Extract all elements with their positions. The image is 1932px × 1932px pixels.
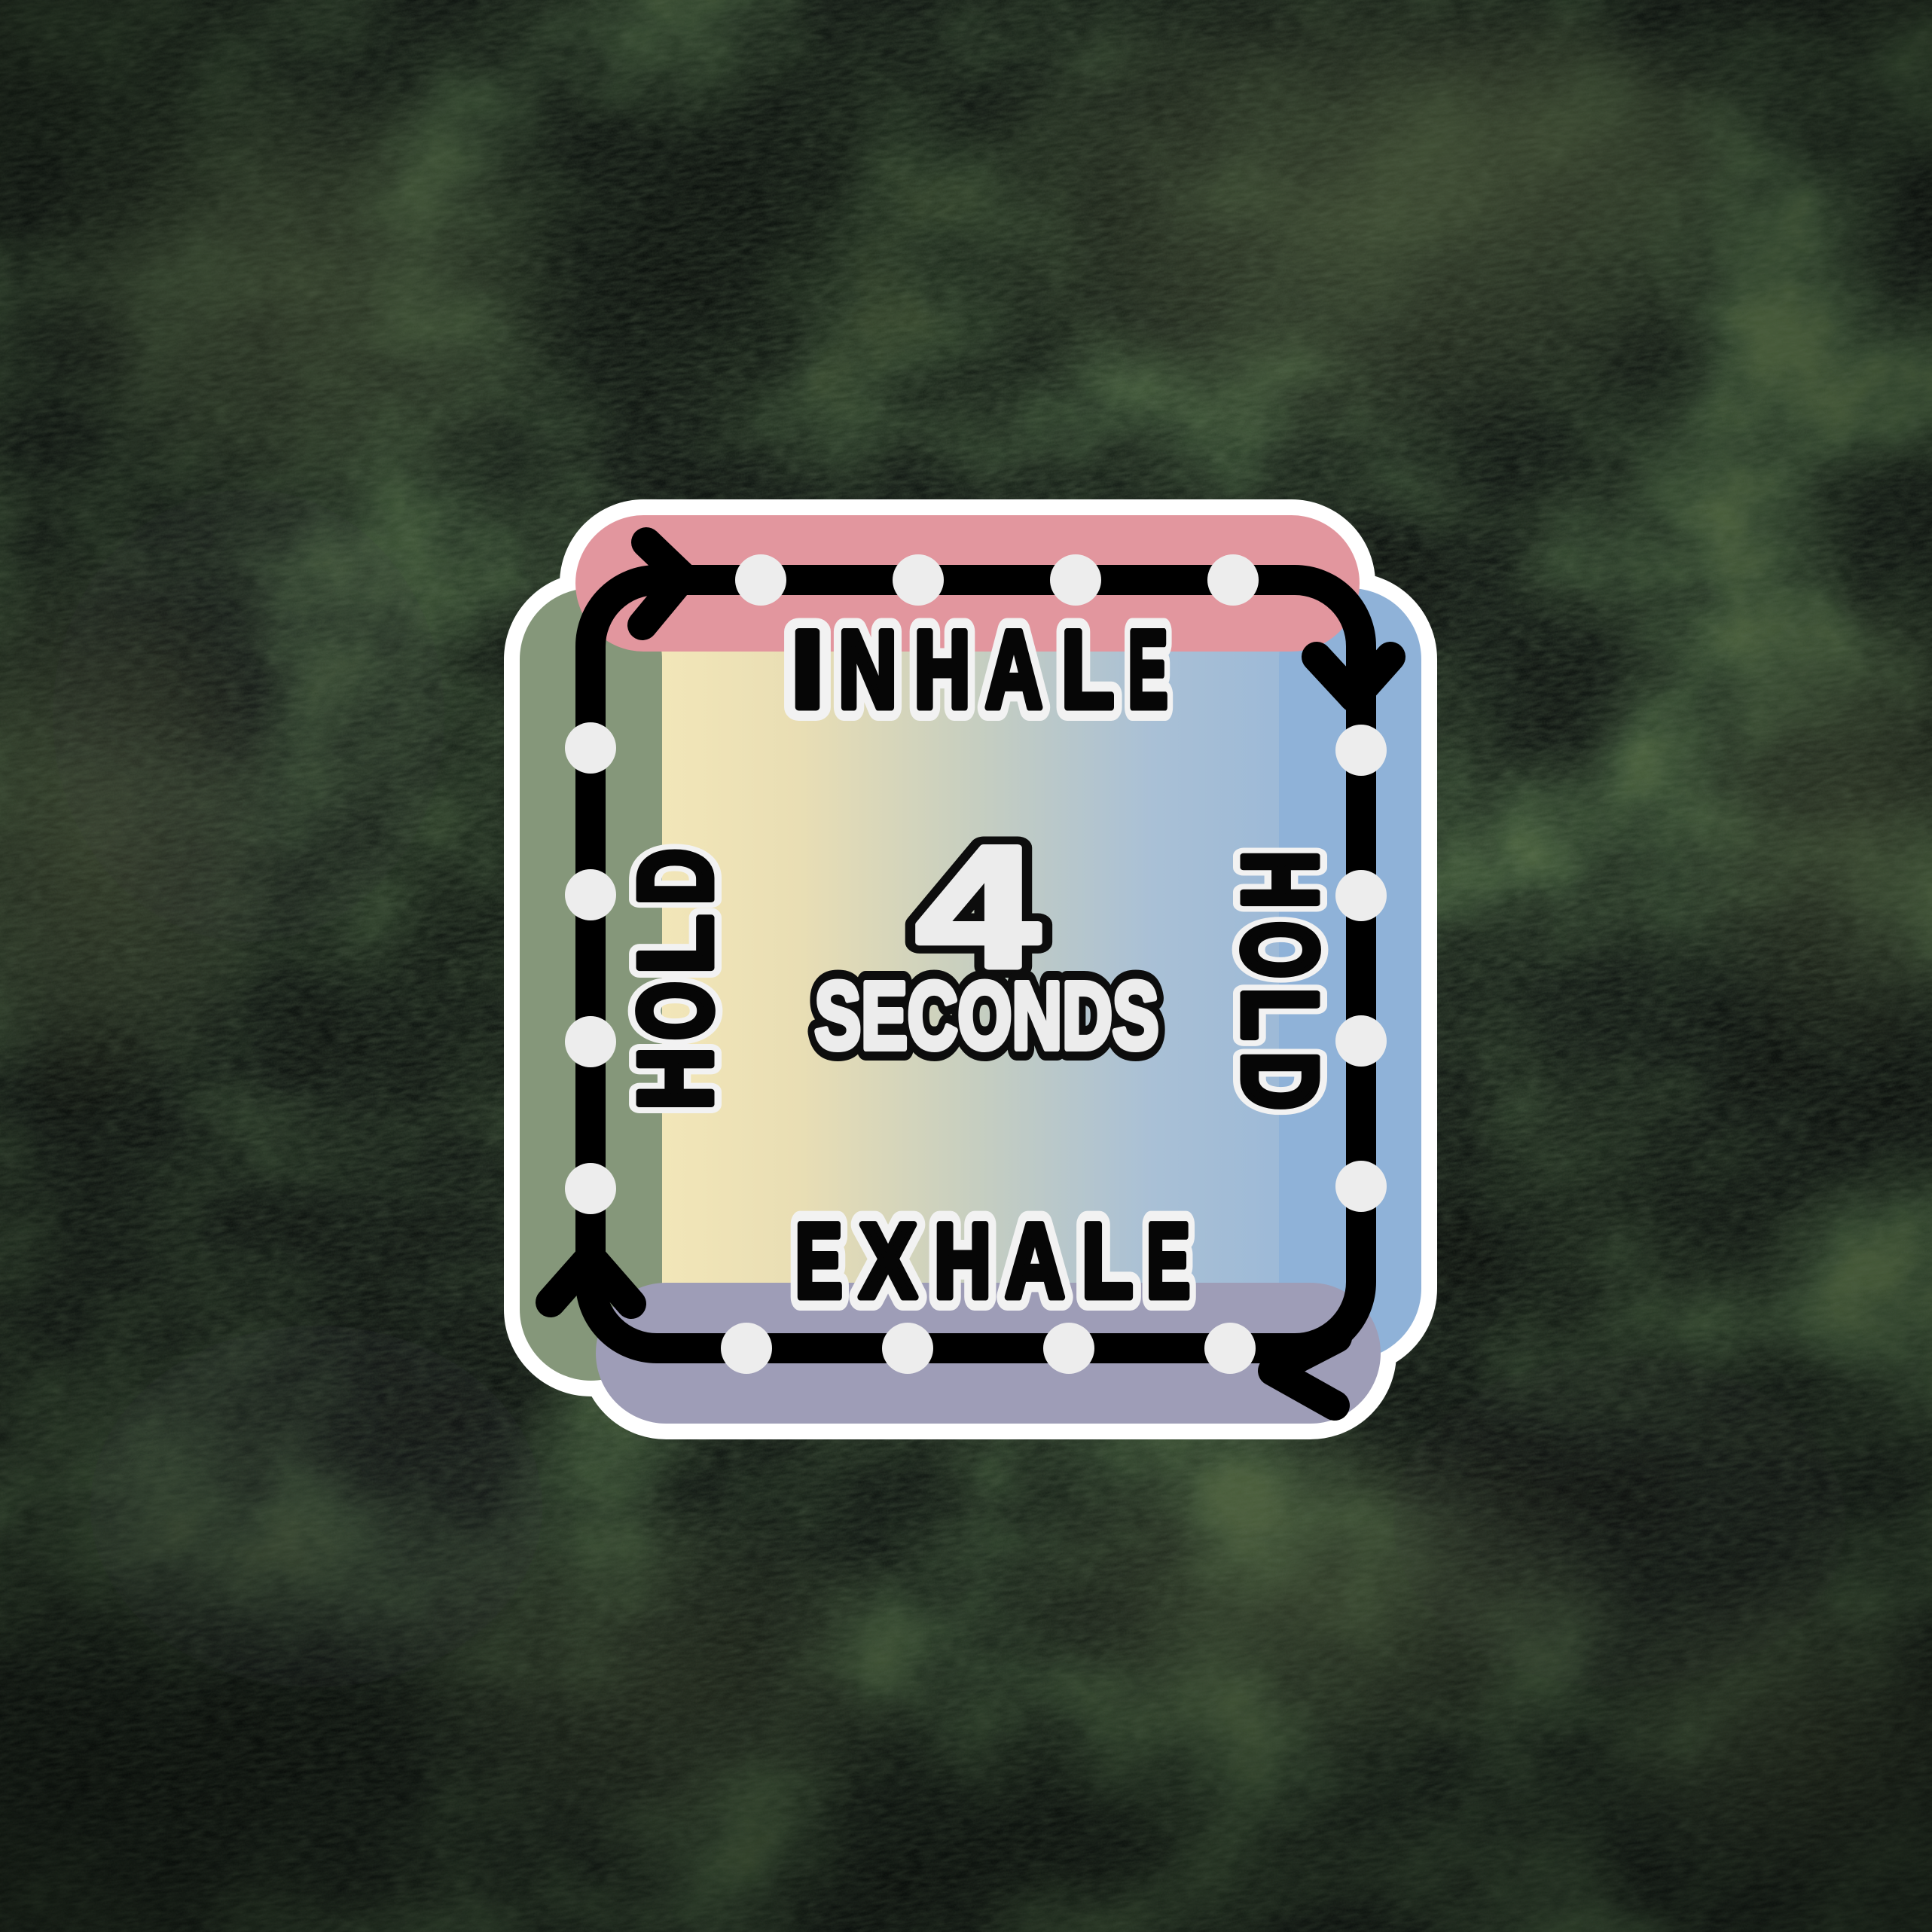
svg-text:N: N (838, 608, 897, 731)
svg-text:E: E (795, 1201, 843, 1320)
svg-text:O: O (618, 981, 734, 1040)
svg-text:H: H (1221, 850, 1340, 909)
svg-text:D: D (618, 849, 734, 905)
svg-text:O: O (1221, 921, 1340, 978)
svg-text:L: L (1082, 1201, 1133, 1320)
svg-text:E: E (1128, 608, 1168, 731)
svg-text:H: H (934, 1201, 991, 1320)
svg-text:H: H (618, 1047, 734, 1110)
svg-text:SECONDS: SECONDS (815, 963, 1159, 1069)
svg-text:A: A (985, 608, 1042, 731)
svg-text:E: E (1146, 1201, 1190, 1320)
svg-text:L: L (618, 915, 734, 975)
svg-text:I: I (791, 608, 824, 731)
svg-text:D: D (1221, 1051, 1340, 1110)
svg-text:X: X (859, 1201, 917, 1320)
svg-text:H: H (914, 608, 971, 731)
svg-text:L: L (1221, 987, 1340, 1040)
svg-text:A: A (1006, 1201, 1065, 1320)
svg-text:L: L (1061, 608, 1114, 731)
